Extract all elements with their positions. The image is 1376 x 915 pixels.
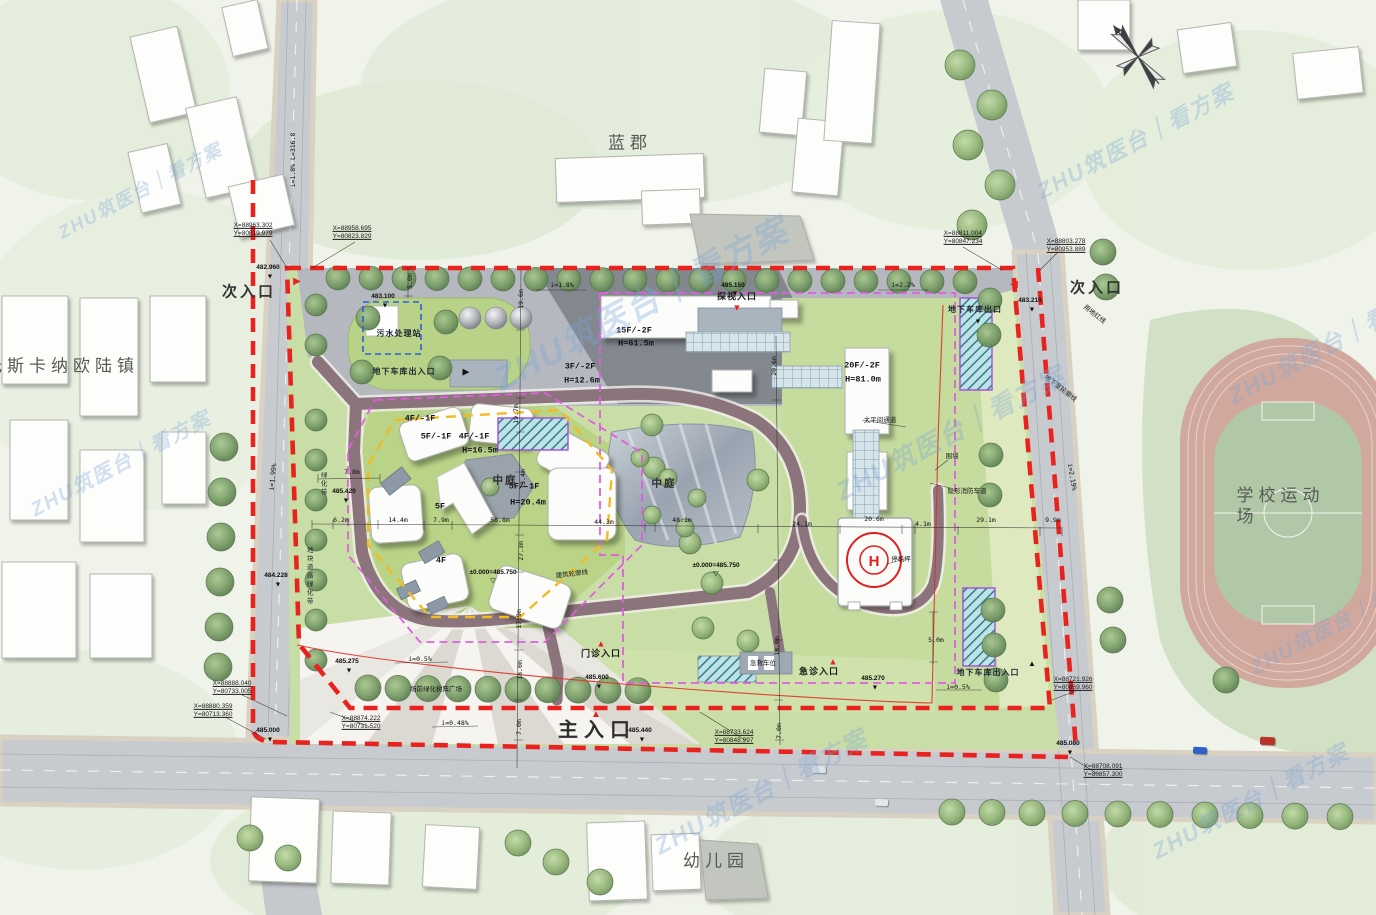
tree xyxy=(854,269,878,293)
tree xyxy=(982,633,1006,657)
tree xyxy=(945,50,975,80)
tree xyxy=(543,849,569,875)
tree xyxy=(978,483,1002,507)
tree xyxy=(1282,803,1308,829)
tree xyxy=(979,443,1003,467)
tree xyxy=(939,799,965,825)
tree xyxy=(1019,800,1045,826)
tree xyxy=(977,323,1001,347)
tree xyxy=(595,677,621,703)
tree xyxy=(385,675,411,701)
tree xyxy=(656,268,680,292)
tree xyxy=(643,506,661,524)
tree xyxy=(210,433,238,461)
tree xyxy=(305,334,327,356)
tree xyxy=(692,617,714,639)
tree xyxy=(434,310,458,334)
tree xyxy=(747,469,769,491)
tree xyxy=(275,845,301,871)
tree xyxy=(305,294,327,316)
tree xyxy=(207,523,235,551)
tree xyxy=(821,269,845,293)
tree xyxy=(208,478,236,506)
tree xyxy=(305,449,327,471)
tree xyxy=(625,678,651,704)
tree xyxy=(688,489,706,507)
tree xyxy=(205,613,233,641)
tree xyxy=(1327,804,1353,830)
tree xyxy=(1100,627,1126,653)
tree xyxy=(977,90,1007,120)
tree xyxy=(659,469,677,487)
tree xyxy=(788,269,812,293)
tree xyxy=(689,268,713,292)
helipad: H xyxy=(838,518,912,610)
tree xyxy=(722,268,746,292)
tree xyxy=(641,414,663,436)
tree xyxy=(1093,274,1119,300)
tree xyxy=(305,529,327,551)
tree xyxy=(984,668,1008,692)
tree xyxy=(415,676,441,702)
tree xyxy=(755,269,779,293)
tree xyxy=(355,675,381,701)
tree xyxy=(957,210,987,240)
tree xyxy=(737,630,759,652)
tree xyxy=(701,572,723,594)
tree xyxy=(305,489,327,511)
tree xyxy=(1062,800,1088,826)
tree xyxy=(445,676,471,702)
tree xyxy=(350,360,374,384)
tree xyxy=(505,830,531,856)
tree xyxy=(978,288,1002,312)
tree xyxy=(356,306,380,330)
tree xyxy=(985,170,1015,200)
site-plan-canvas: H xyxy=(0,0,1376,915)
tree xyxy=(305,569,327,591)
tree xyxy=(206,568,234,596)
tree xyxy=(305,609,327,631)
tree xyxy=(1213,667,1239,693)
tree xyxy=(1147,801,1173,827)
tree xyxy=(587,869,613,895)
svg-text:H: H xyxy=(869,553,880,570)
tree xyxy=(481,478,499,496)
tree xyxy=(623,268,647,292)
tree xyxy=(204,653,232,681)
tree xyxy=(1105,801,1131,827)
tree xyxy=(557,267,581,291)
tree xyxy=(979,799,1005,825)
tree xyxy=(237,825,263,851)
tree xyxy=(1090,239,1116,265)
tree xyxy=(676,519,694,537)
tree xyxy=(491,267,515,291)
tree xyxy=(475,676,501,702)
tree xyxy=(1192,802,1218,828)
tree xyxy=(305,409,327,431)
tree xyxy=(428,356,452,380)
tree xyxy=(953,130,983,160)
tree xyxy=(535,677,561,703)
tree xyxy=(590,268,614,292)
tree xyxy=(981,598,1005,622)
tree xyxy=(1097,587,1123,613)
tree xyxy=(1237,803,1263,829)
site-plan: H xyxy=(0,0,1376,915)
tree xyxy=(524,267,548,291)
tree xyxy=(458,267,482,291)
tree xyxy=(631,449,649,467)
tree xyxy=(953,270,977,294)
